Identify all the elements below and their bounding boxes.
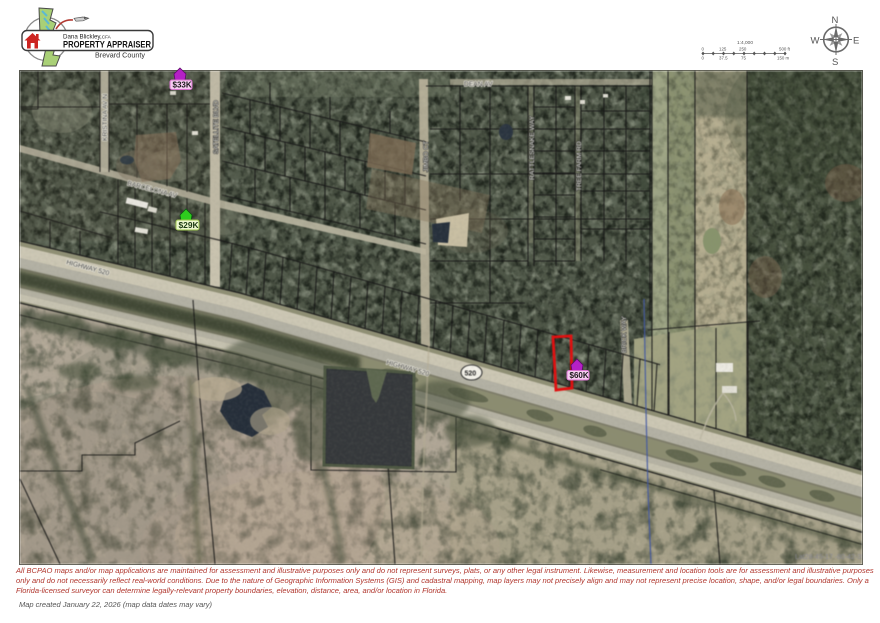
svg-text:E: E <box>853 36 859 47</box>
svg-text:0: 0 <box>702 47 705 52</box>
svg-text:$29K: $29K <box>179 220 199 230</box>
svg-text:150 m: 150 m <box>777 56 790 61</box>
svg-text:PROPERTY APPRAISER: PROPERTY APPRAISER <box>63 40 151 50</box>
svg-text:W: W <box>811 36 820 47</box>
svg-text:75: 75 <box>741 56 746 61</box>
svg-text:N: N <box>832 15 839 26</box>
svg-text:250: 250 <box>739 47 747 52</box>
svg-text:$60K: $60K <box>570 371 589 380</box>
svg-text:1:4,000: 1:4,000 <box>737 40 753 46</box>
svg-text:0: 0 <box>702 56 705 61</box>
svg-text:$33K: $33K <box>173 81 192 90</box>
svg-text:37.5: 37.5 <box>719 56 728 61</box>
svg-text:Brevard County: Brevard County <box>95 51 145 60</box>
svg-text:500 ft: 500 ft <box>779 47 791 52</box>
svg-text:S: S <box>832 57 838 68</box>
svg-text:125: 125 <box>719 47 727 52</box>
